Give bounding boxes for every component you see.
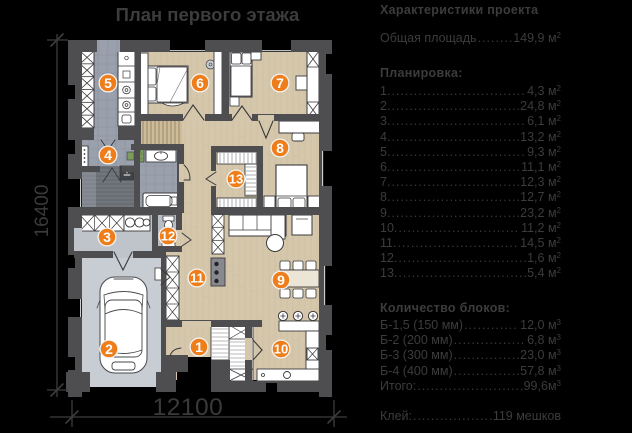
svg-text:6: 6: [196, 75, 204, 91]
svg-text:12: 12: [161, 229, 175, 244]
svg-text:7: 7: [276, 75, 284, 91]
svg-text:10: 10: [274, 342, 288, 357]
svg-text:4: 4: [104, 147, 112, 163]
svg-text:8: 8: [276, 140, 284, 156]
svg-text:13: 13: [229, 172, 243, 187]
svg-text:1: 1: [195, 339, 203, 355]
svg-text:2: 2: [105, 341, 113, 357]
svg-text:9: 9: [277, 272, 285, 288]
svg-text:5: 5: [104, 75, 112, 91]
svg-text:3: 3: [103, 229, 111, 245]
svg-text:11: 11: [190, 271, 204, 286]
